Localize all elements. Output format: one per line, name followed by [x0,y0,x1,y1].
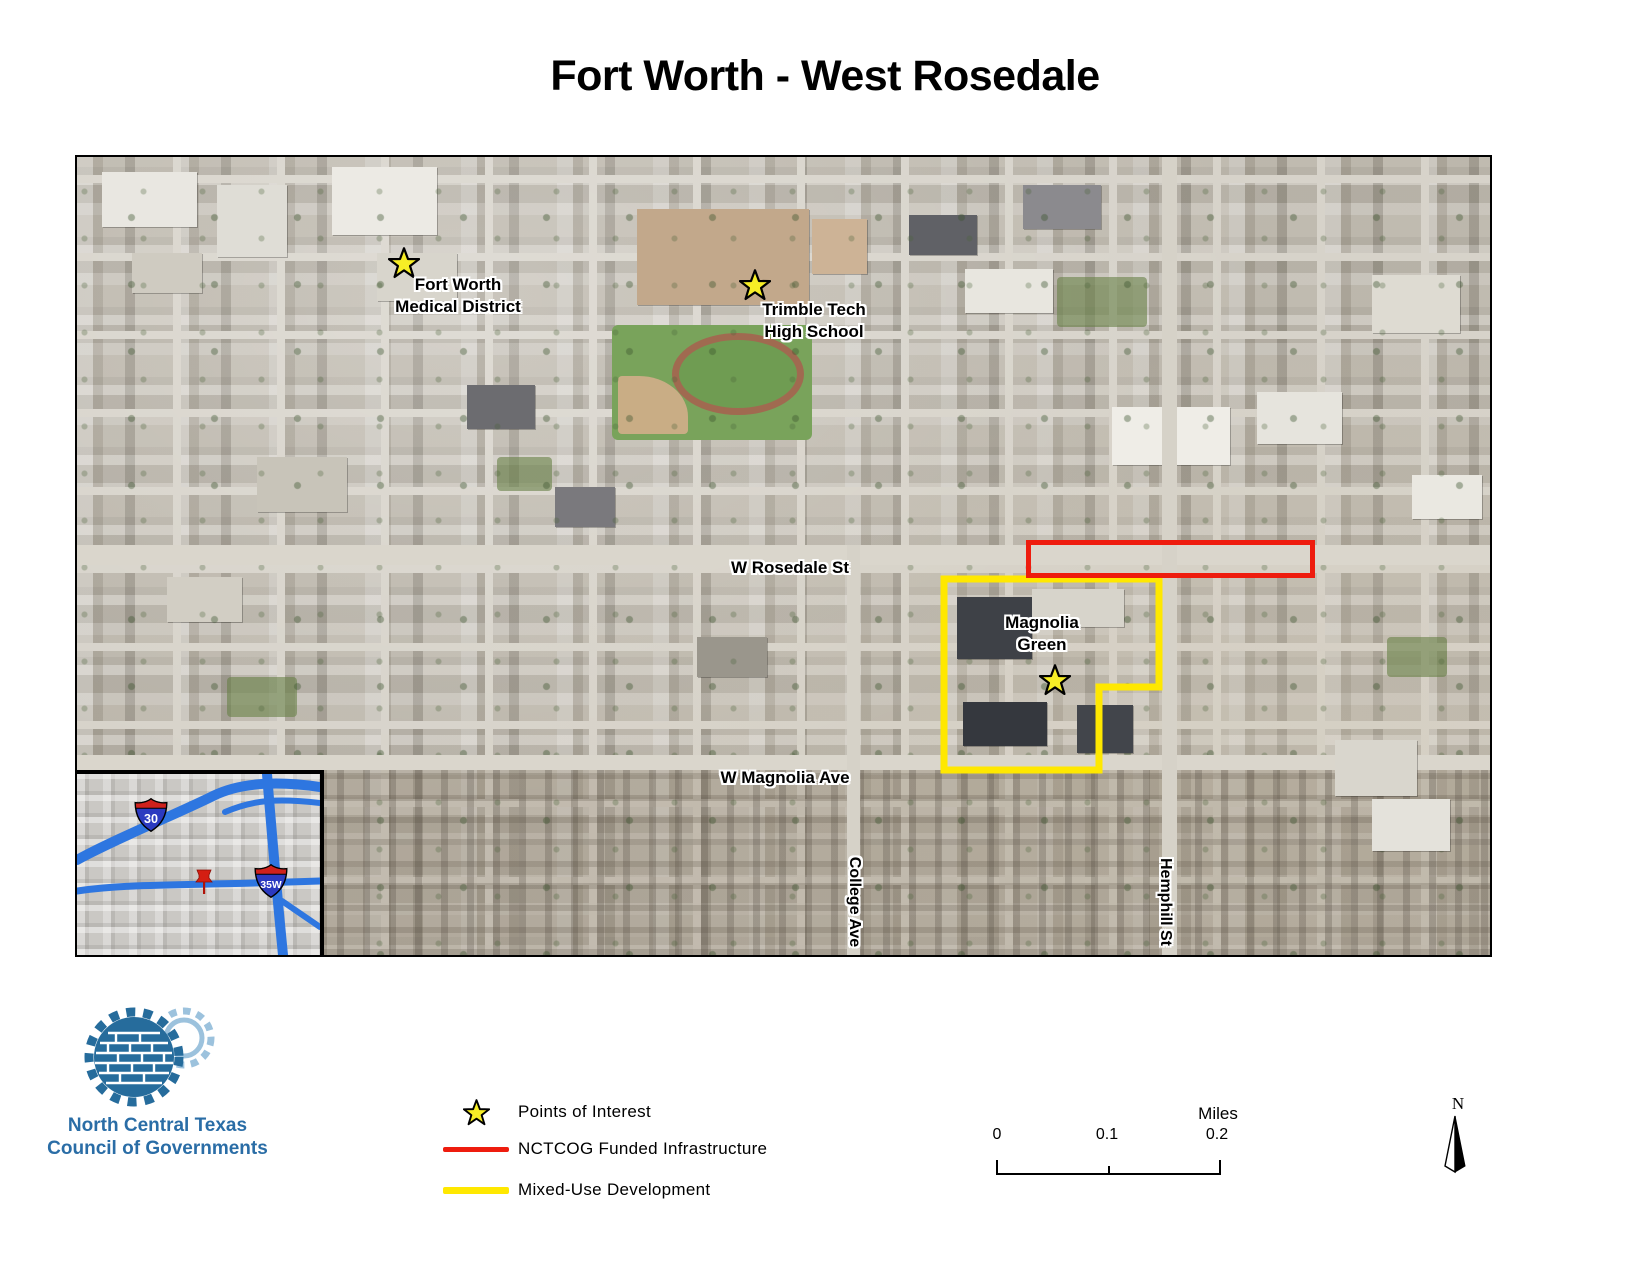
legend-entry-mixed-use: Mixed-Use Development [440,1177,710,1203]
nctcog-gear-logo-icon [72,1002,242,1112]
scalebar-tick-label: 0 [993,1126,1002,1144]
funded-infrastructure-outline [1026,540,1315,578]
nctcog-logo-wordmark: North Central Texas Council of Governmen… [40,1114,275,1160]
legend-star-icon [463,1099,490,1126]
poi-label-magnolia-green: Magnolia Green [1005,612,1079,656]
north-label: N [1452,1094,1464,1114]
legend-label: NCTCOG Funded Infrastructure [518,1139,767,1159]
legend-label: Points of Interest [518,1102,651,1122]
scalebar-tick-label: 0.2 [1206,1126,1228,1144]
poi-star-icon [739,269,771,301]
scalebar [996,1160,1221,1175]
legend-red-line-icon [443,1147,509,1152]
locator-inset-map: 30 35W [77,770,324,955]
scalebar-unit-label: Miles [1198,1104,1238,1124]
street-label-hemphill: Hemphill St [1154,858,1176,946]
north-arrow-icon [1442,1114,1468,1178]
poi-star-icon [1039,664,1071,696]
street-label-magnolia: W Magnolia Ave [720,767,849,789]
poi-label-trimble-tech: Trimble Tech High School [762,299,866,343]
scalebar-mid-tick [1108,1166,1110,1173]
interstate-30-shield-icon: 30 [133,797,169,833]
scalebar-tick-label: 0.1 [1096,1126,1118,1144]
street-label-rosedale: W Rosedale St [731,557,849,579]
pushpin-icon [193,869,215,897]
interstate-35w-shield-icon: 35W [253,863,289,899]
page-title: Fort Worth - West Rosedale [0,52,1650,101]
map-canvas: Fort Worth Medical District Trimble Tech… [75,155,1492,957]
poi-label-fort-worth-medical: Fort Worth Medical District [395,274,521,318]
street-label-college: College Ave [843,857,865,947]
svg-text:30: 30 [144,812,158,826]
legend-yellow-line-icon [443,1187,509,1194]
map-document-page: Fort Worth - West Rosedale [0,0,1650,1275]
legend-entry-points-of-interest: Points of Interest [440,1099,651,1125]
legend-label: Mixed-Use Development [518,1180,710,1200]
svg-text:35W: 35W [260,880,282,891]
legend-entry-funded-infrastructure: NCTCOG Funded Infrastructure [440,1136,767,1162]
